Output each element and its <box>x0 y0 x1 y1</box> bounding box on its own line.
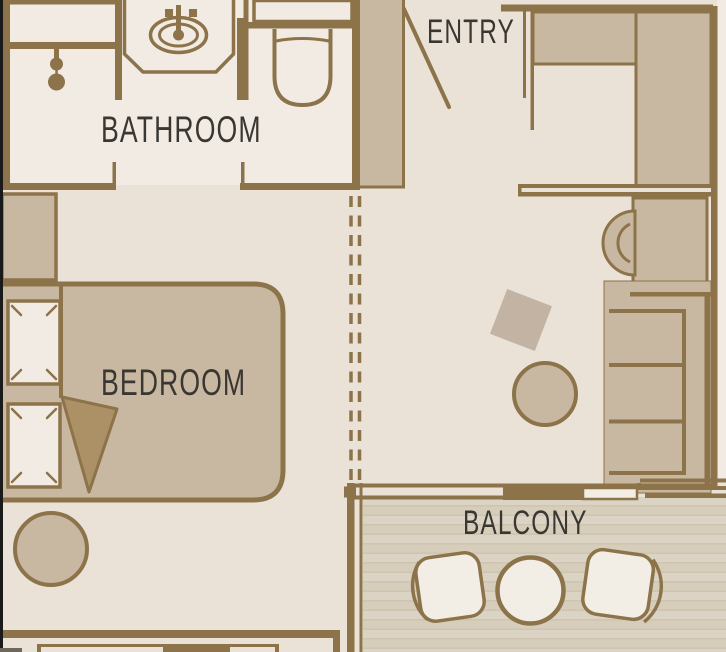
sofa-cushion-front-line <box>682 309 686 475</box>
entry-wardrobe <box>359 0 404 187</box>
toilet-niche-top-wall <box>243 22 357 29</box>
balcony-window-line-1 <box>640 479 726 483</box>
entry-counter-line-top <box>521 184 711 188</box>
toilet-tank <box>254 1 352 22</box>
shower-head <box>48 74 65 91</box>
shower-knob <box>50 58 63 71</box>
bottom-window-jamb-right <box>275 644 279 652</box>
bedroom-bottom-corner <box>333 630 340 652</box>
balcony-door-track-bottom <box>354 496 505 500</box>
bottom-window-jamb-left <box>37 644 41 652</box>
balcony-left-wall <box>347 483 355 652</box>
bottom-left-sill <box>0 648 22 652</box>
bedroom-bottom-wall <box>0 630 340 638</box>
sofa-cushion-line-3 <box>609 420 686 424</box>
living-round-table <box>514 363 576 425</box>
sofa-cushion-line-4 <box>609 471 686 475</box>
balcony-window-line-3 <box>645 494 726 499</box>
balcony-chair-left-seat <box>414 551 486 623</box>
balcony-chair-left <box>409 551 487 624</box>
sofa-top-edge <box>630 292 711 297</box>
balcony-chair-right-seat <box>581 548 655 622</box>
entry-top-wall <box>501 5 713 12</box>
room-label-bedroom: BEDROOM <box>101 364 246 401</box>
sink-niche-left-wall <box>115 0 122 100</box>
balcony-window-step <box>637 483 641 490</box>
balcony-left-wall-inner <box>360 483 363 652</box>
balcony-chair-right <box>581 548 666 624</box>
closet-right <box>636 12 711 186</box>
bedroom-stool <box>15 513 87 585</box>
toilet-niche-left-wall <box>244 0 249 100</box>
faucet-spout <box>173 30 184 41</box>
sofa-cushion-line-1 <box>609 309 686 313</box>
left-wardrobe <box>2 194 56 280</box>
bathroom-right-wall <box>352 0 360 188</box>
bathroom-top-wall <box>3 0 120 5</box>
bathroom-bottom-wall-right <box>240 183 360 190</box>
closet-top <box>533 12 636 64</box>
sofa-back-edge <box>705 292 711 488</box>
shower-niche-wall <box>3 42 122 49</box>
bathroom-door-jamb-left <box>113 162 117 183</box>
left-crop-edge <box>0 0 3 652</box>
bathroom-bottom-wall-left <box>0 183 116 190</box>
ottoman-square <box>490 289 552 351</box>
sofa-cushion-line-2 <box>609 363 686 367</box>
balcony-open-panel <box>583 488 637 499</box>
bottom-window-line <box>37 644 279 647</box>
entry-jamb-outer <box>523 11 526 98</box>
entry-jamb-inner <box>531 11 535 130</box>
floor-plan: BATHROOM ENTRY BEDROOM BALCONY <box>0 0 726 652</box>
faucet-handle-right <box>189 9 197 17</box>
faucet-handle-left <box>165 9 173 17</box>
plan-drawing <box>0 0 726 652</box>
room-label-balcony: BALCONY <box>463 506 588 540</box>
balcony-table <box>498 558 564 624</box>
bathroom-left-wall <box>3 0 10 190</box>
room-label-bathroom: BATHROOM <box>101 111 262 148</box>
entry-counter-end <box>518 184 522 197</box>
balcony-window-line-2 <box>637 486 726 490</box>
pillow-top <box>8 301 60 384</box>
right-outer-wall <box>711 6 718 490</box>
faucet-stem <box>176 5 181 33</box>
desk <box>633 198 707 293</box>
entry-counter-line-bottom <box>521 192 711 197</box>
pillow-bottom <box>8 404 60 487</box>
bathroom-door-jamb-right <box>241 162 245 183</box>
balcony-sliding-panel <box>503 487 584 500</box>
sink-niche-right-wall <box>237 18 244 100</box>
bottom-window-sill <box>163 644 230 652</box>
room-label-entry: ENTRY <box>427 15 515 49</box>
